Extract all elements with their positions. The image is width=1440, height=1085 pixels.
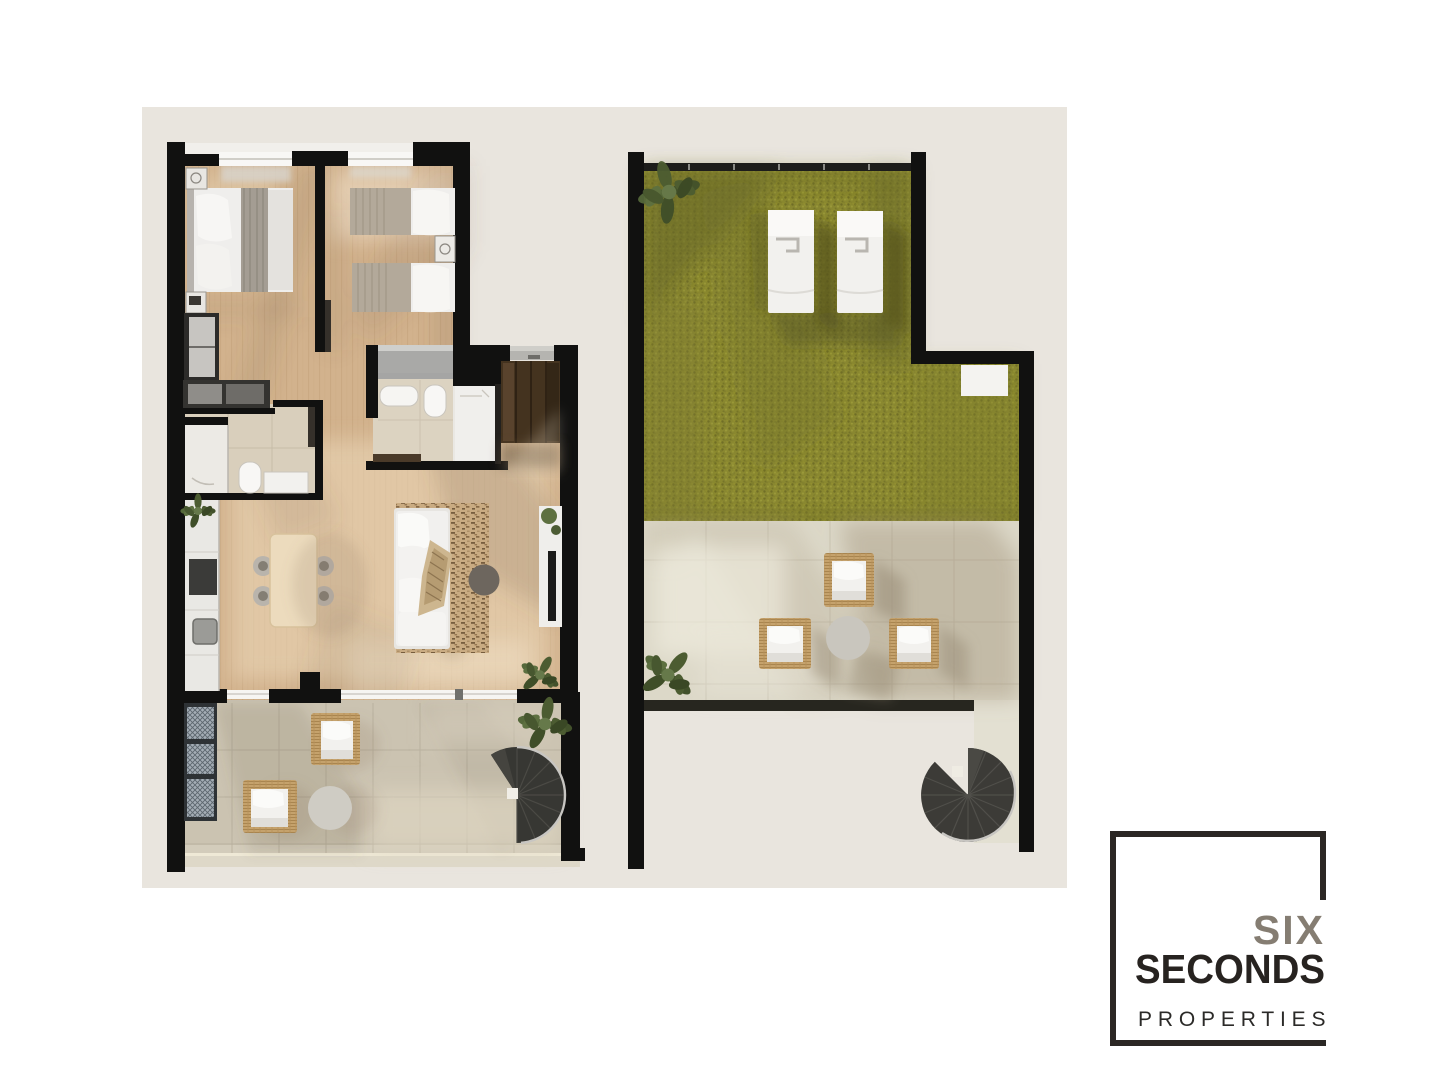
- svg-text:PROPERTIES: PROPERTIES: [1138, 1008, 1331, 1031]
- svg-text:SECONDS: SECONDS: [1135, 946, 1325, 992]
